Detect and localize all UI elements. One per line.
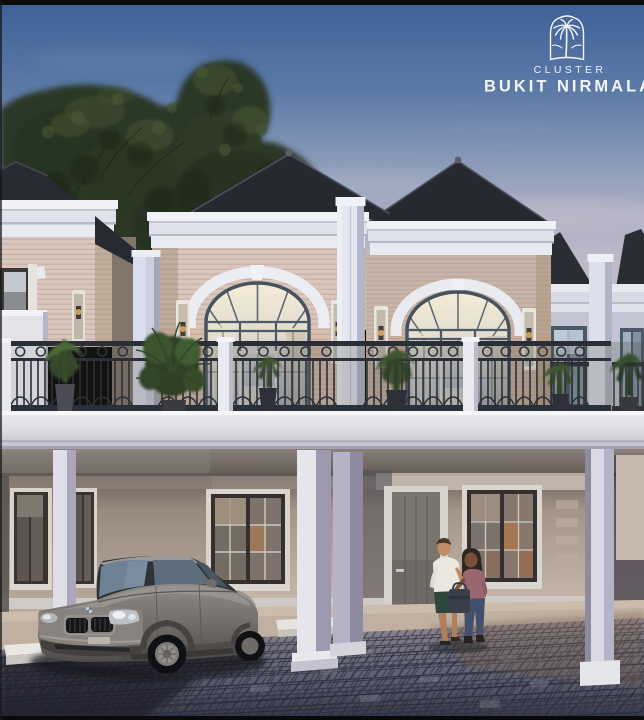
svg-text:BUKIT NIRMALA: BUKIT NIRMALA [484, 78, 644, 96]
svg-text:CLUSTER: CLUSTER [534, 64, 607, 76]
